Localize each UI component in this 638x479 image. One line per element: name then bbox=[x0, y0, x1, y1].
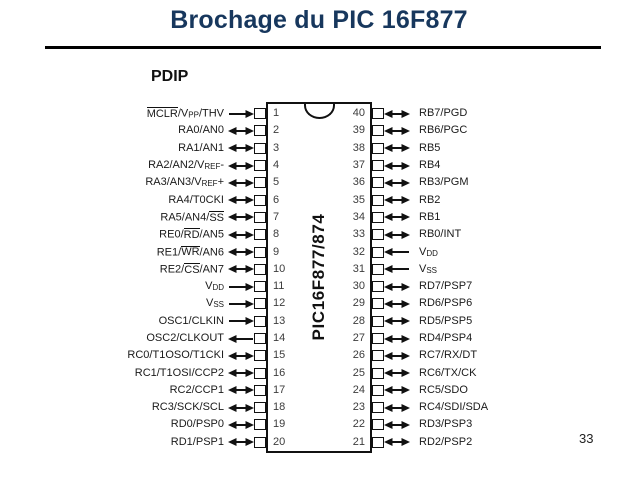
pin-label: RB2 bbox=[410, 195, 638, 206]
pin-label-text: RD2/PSP2 bbox=[419, 436, 472, 448]
pin-label: RD1/PSP1 bbox=[0, 437, 228, 448]
pin-label: RE1/WR/AN6 bbox=[0, 246, 228, 259]
direction-arrow-icon bbox=[228, 316, 254, 326]
pin-label: OSC1/CLKIN bbox=[0, 316, 228, 327]
pin-label: RD2/PSP2 bbox=[410, 437, 638, 448]
bidirectional-arrow-icon bbox=[228, 420, 254, 430]
pin-number: 3 bbox=[266, 143, 294, 154]
bidirectional-arrow-icon bbox=[228, 351, 254, 361]
pin-number: 4 bbox=[266, 160, 294, 171]
pin-label-text: RB5 bbox=[419, 142, 440, 154]
slide: Brochage du PIC 16F877 PDIP PIC16F877/87… bbox=[0, 0, 638, 479]
pin-number: 26 bbox=[344, 350, 372, 361]
pin-label: MCLR/VPP/THV bbox=[0, 107, 228, 120]
pin-number: 10 bbox=[266, 264, 294, 275]
pin-label-text: RD6/PSP6 bbox=[419, 297, 472, 309]
pin-number: 11 bbox=[266, 281, 294, 292]
pin-label-text: /AN6 bbox=[200, 246, 224, 258]
pin-row: RD0/PSP01922RD3/PSP3 bbox=[0, 416, 638, 433]
pin-label-text: OSC1/CLKIN bbox=[159, 315, 224, 327]
pin-label: RB3/PGM bbox=[410, 177, 638, 188]
pin-rows: MCLR/VPP/THV140RB7/PGDRA0/AN0239RB6/PGCR… bbox=[0, 105, 638, 451]
pin-label-overline: MCLR bbox=[147, 107, 178, 120]
pin-label-subscript: REF bbox=[204, 162, 220, 171]
pin-row: VDD1130RD7/PSP7 bbox=[0, 278, 638, 295]
pin-square bbox=[254, 368, 266, 379]
pin-number: 6 bbox=[266, 195, 294, 206]
pin-square bbox=[372, 247, 384, 258]
pin-square bbox=[372, 419, 384, 430]
pin-square bbox=[254, 316, 266, 327]
bidirectional-arrow-icon bbox=[384, 403, 410, 413]
pin-number: 14 bbox=[266, 333, 294, 344]
pin-label: RC1/T1OSI/CCP2 bbox=[0, 368, 228, 379]
pin-square bbox=[372, 437, 384, 448]
pin-square bbox=[254, 229, 266, 240]
pin-number: 21 bbox=[344, 437, 372, 448]
pin-label-subscript: DD bbox=[426, 249, 438, 258]
page-number: 33 bbox=[579, 431, 593, 446]
bidirectional-arrow-icon bbox=[228, 403, 254, 413]
pin-label-overline: SS bbox=[209, 211, 224, 224]
pin-number: 23 bbox=[344, 402, 372, 413]
pin-label: RA5/AN4/SS bbox=[0, 211, 228, 224]
bidirectional-arrow-icon bbox=[384, 420, 410, 430]
pin-label: RD7/PSP7 bbox=[410, 281, 638, 292]
pin-square bbox=[372, 316, 384, 327]
pin-row: RA4/T0CKI635RB2 bbox=[0, 191, 638, 208]
pin-number: 35 bbox=[344, 195, 372, 206]
pin-label-text: RA3/AN3/V bbox=[145, 176, 201, 188]
pin-number: 1 bbox=[266, 108, 294, 119]
package-label: PDIP bbox=[151, 68, 188, 86]
pin-number: 31 bbox=[344, 264, 372, 275]
pin-label-text: RD4/PSP4 bbox=[419, 332, 472, 344]
pin-label-text: RA5/AN4/ bbox=[160, 212, 209, 224]
pin-number: 8 bbox=[266, 229, 294, 240]
pin-row: MCLR/VPP/THV140RB7/PGD bbox=[0, 105, 638, 122]
pin-label-text: RD3/PSP3 bbox=[419, 418, 472, 430]
bidirectional-arrow-icon bbox=[384, 109, 410, 119]
pin-label-text: RB4 bbox=[419, 159, 440, 171]
pin-label: RC6/TX/CK bbox=[410, 368, 638, 379]
pin-label-text: RC1/T1OSI/CCP2 bbox=[135, 367, 224, 379]
pin-label: RA4/T0CKI bbox=[0, 195, 228, 206]
pin-number: 28 bbox=[344, 316, 372, 327]
pin-label: RA2/AN2/VREF- bbox=[0, 160, 228, 171]
pin-label-subscript: SS bbox=[213, 300, 224, 309]
bidirectional-arrow-icon bbox=[228, 437, 254, 447]
pin-label-text: RA4/T0CKI bbox=[168, 194, 224, 206]
pin-number: 7 bbox=[266, 212, 294, 223]
pin-square bbox=[372, 264, 384, 275]
bidirectional-arrow-icon bbox=[384, 178, 410, 188]
bidirectional-arrow-icon bbox=[228, 230, 254, 240]
direction-arrow-icon bbox=[228, 282, 254, 292]
pin-square bbox=[372, 368, 384, 379]
pin-number: 29 bbox=[344, 298, 372, 309]
pin-number: 19 bbox=[266, 419, 294, 430]
bidirectional-arrow-icon bbox=[228, 264, 254, 274]
pin-square bbox=[254, 281, 266, 292]
bidirectional-arrow-icon bbox=[228, 178, 254, 188]
pin-label: RB5 bbox=[410, 143, 638, 154]
pin-label: RA0/AN0 bbox=[0, 125, 228, 136]
pin-square bbox=[254, 333, 266, 344]
pin-square bbox=[372, 125, 384, 136]
pin-square bbox=[254, 402, 266, 413]
pin-number: 15 bbox=[266, 350, 294, 361]
pin-square bbox=[254, 143, 266, 154]
bidirectional-arrow-icon bbox=[228, 385, 254, 395]
bidirectional-arrow-icon bbox=[384, 299, 410, 309]
bidirectional-arrow-icon bbox=[228, 368, 254, 378]
pin-label-text: RB3/PGM bbox=[419, 176, 469, 188]
pin-square bbox=[372, 350, 384, 361]
pin-label: RA1/AN1 bbox=[0, 143, 228, 154]
pin-square bbox=[254, 419, 266, 430]
bidirectional-arrow-icon bbox=[384, 195, 410, 205]
pin-label: RC5/SDO bbox=[410, 385, 638, 396]
pin-label-text: RB6/PGC bbox=[419, 124, 467, 136]
bidirectional-arrow-icon bbox=[384, 126, 410, 136]
pin-square bbox=[372, 298, 384, 309]
pin-label-overline: RD bbox=[184, 228, 200, 241]
pin-square bbox=[372, 229, 384, 240]
pin-number: 17 bbox=[266, 385, 294, 396]
pin-row: RA2/AN2/VREF-437RB4 bbox=[0, 157, 638, 174]
pin-row: RE1/WR/AN6932VDD bbox=[0, 243, 638, 260]
pin-label-text: RD5/PSP5 bbox=[419, 315, 472, 327]
pin-square bbox=[372, 143, 384, 154]
bidirectional-arrow-icon bbox=[228, 143, 254, 153]
pin-row: RD1/PSP12021RD2/PSP2 bbox=[0, 434, 638, 451]
bidirectional-arrow-icon bbox=[228, 126, 254, 136]
pin-label-overline: CS bbox=[184, 263, 199, 276]
pin-row: RC3/SCK/SCL1823RC4/SDI/SDA bbox=[0, 399, 638, 416]
pin-label: RD3/PSP3 bbox=[410, 419, 638, 430]
pin-label-subscript: REF bbox=[202, 179, 218, 188]
pin-label-text: /V bbox=[178, 108, 188, 120]
pin-number: 24 bbox=[344, 385, 372, 396]
pin-label-text: RE2/ bbox=[160, 264, 184, 276]
pin-row: RC0/T1OSO/T1CKI1526RC7/RX/DT bbox=[0, 347, 638, 364]
pin-label: RB1 bbox=[410, 212, 638, 223]
pin-label-text: /AN7 bbox=[200, 264, 224, 276]
pin-number: 39 bbox=[344, 125, 372, 136]
pin-number: 12 bbox=[266, 298, 294, 309]
pin-label: RD5/PSP5 bbox=[410, 316, 638, 327]
pin-row: VSS1229RD6/PSP6 bbox=[0, 295, 638, 312]
pin-label-text: RC2/CCP1 bbox=[170, 384, 224, 396]
pin-number: 40 bbox=[344, 108, 372, 119]
pin-label-text: RC3/SCK/SCL bbox=[152, 401, 224, 413]
pin-label-text: RC0/T1OSO/T1CKI bbox=[127, 349, 224, 361]
pin-square bbox=[254, 108, 266, 119]
pin-number: 9 bbox=[266, 247, 294, 258]
direction-arrow-icon bbox=[228, 299, 254, 309]
pin-label-text: RC5/SDO bbox=[419, 384, 468, 396]
title-underline bbox=[45, 46, 601, 49]
pin-number: 36 bbox=[344, 177, 372, 188]
pin-square bbox=[372, 177, 384, 188]
pin-label: RC4/SDI/SDA bbox=[410, 402, 638, 413]
pin-label: RE0/RD/AN5 bbox=[0, 228, 228, 241]
pin-label-text: RD7/PSP7 bbox=[419, 280, 472, 292]
pin-label-text: RD0/PSP0 bbox=[171, 418, 224, 430]
pin-square bbox=[372, 108, 384, 119]
pin-label-text: RB7/PGD bbox=[419, 107, 467, 119]
pin-label: VSS bbox=[0, 298, 228, 309]
pin-label: RA3/AN3/VREF+ bbox=[0, 177, 228, 188]
pin-square bbox=[372, 333, 384, 344]
pin-label-text: RB0/INT bbox=[419, 228, 461, 240]
pin-label: OSC2/CLKOUT bbox=[0, 333, 228, 344]
pin-number: 27 bbox=[344, 333, 372, 344]
pin-label: RC3/SCK/SCL bbox=[0, 402, 228, 413]
pin-row: RA1/AN1338RB5 bbox=[0, 140, 638, 157]
pin-square bbox=[254, 247, 266, 258]
bidirectional-arrow-icon bbox=[384, 143, 410, 153]
pin-label-text: RB1 bbox=[419, 211, 440, 223]
bidirectional-arrow-icon bbox=[228, 212, 254, 222]
pin-number: 34 bbox=[344, 212, 372, 223]
bidirectional-arrow-icon bbox=[384, 230, 410, 240]
pin-square bbox=[254, 264, 266, 275]
bidirectional-arrow-icon bbox=[228, 195, 254, 205]
pin-label-text: RA2/AN2/V bbox=[148, 159, 204, 171]
bidirectional-arrow-icon bbox=[384, 161, 410, 171]
pin-row: RC1/T1OSI/CCP21625RC6/TX/CK bbox=[0, 364, 638, 381]
bidirectional-arrow-icon bbox=[384, 282, 410, 292]
pin-square bbox=[372, 212, 384, 223]
bidirectional-arrow-icon bbox=[384, 316, 410, 326]
pin-label: RD0/PSP0 bbox=[0, 419, 228, 430]
pin-label-subscript: PP bbox=[188, 111, 199, 120]
pin-square bbox=[372, 402, 384, 413]
pin-square bbox=[254, 437, 266, 448]
direction-arrow-icon bbox=[384, 264, 410, 274]
pin-square bbox=[254, 177, 266, 188]
bidirectional-arrow-icon bbox=[384, 437, 410, 447]
pin-label-subscript: DD bbox=[212, 283, 224, 292]
pin-row: RE2/CS/AN71031VSS bbox=[0, 261, 638, 278]
pin-number: 32 bbox=[344, 247, 372, 258]
pin-label: RB6/PGC bbox=[410, 125, 638, 136]
pin-label: RB0/INT bbox=[410, 229, 638, 240]
pin-label: RC0/T1OSO/T1CKI bbox=[0, 350, 228, 361]
pin-label-text: + bbox=[218, 176, 224, 188]
pin-square bbox=[254, 125, 266, 136]
direction-arrow-icon bbox=[384, 247, 410, 257]
pin-label-text: RA1/AN1 bbox=[178, 142, 224, 154]
pin-label: RD6/PSP6 bbox=[410, 298, 638, 309]
pin-label-subscript: SS bbox=[426, 266, 437, 275]
pin-label: RC7/RX/DT bbox=[410, 350, 638, 361]
pin-label-text: RE0/ bbox=[159, 229, 183, 241]
bidirectional-arrow-icon bbox=[384, 334, 410, 344]
pin-square bbox=[372, 281, 384, 292]
pin-square bbox=[254, 350, 266, 361]
pin-label-text: RC7/RX/DT bbox=[419, 349, 477, 361]
pin-number: 13 bbox=[266, 316, 294, 327]
pin-number: 16 bbox=[266, 368, 294, 379]
pin-number: 38 bbox=[344, 143, 372, 154]
pin-label-text: RC4/SDI/SDA bbox=[419, 401, 488, 413]
pin-row: RA5/AN4/SS734RB1 bbox=[0, 209, 638, 226]
pin-square bbox=[254, 160, 266, 171]
pin-number: 2 bbox=[266, 125, 294, 136]
pin-number: 37 bbox=[344, 160, 372, 171]
pin-number: 5 bbox=[266, 177, 294, 188]
pin-square bbox=[254, 385, 266, 396]
pin-number: 22 bbox=[344, 419, 372, 430]
pin-label-text: RB2 bbox=[419, 194, 440, 206]
page-title: Brochage du PIC 16F877 bbox=[0, 6, 638, 35]
pin-label: RC2/CCP1 bbox=[0, 385, 228, 396]
pin-number: 30 bbox=[344, 281, 372, 292]
pin-row: RA0/AN0239RB6/PGC bbox=[0, 122, 638, 139]
pin-label-text: RD1/PSP1 bbox=[171, 436, 224, 448]
pin-label: RD4/PSP4 bbox=[410, 333, 638, 344]
pin-square bbox=[254, 298, 266, 309]
pin-label-text: OSC2/CLKOUT bbox=[146, 332, 224, 344]
pin-row: OSC2/CLKOUT1427RD4/PSP4 bbox=[0, 330, 638, 347]
bidirectional-arrow-icon bbox=[384, 351, 410, 361]
pin-square bbox=[254, 212, 266, 223]
bidirectional-arrow-icon bbox=[228, 247, 254, 257]
pin-label: RE2/CS/AN7 bbox=[0, 263, 228, 276]
pin-square bbox=[254, 195, 266, 206]
direction-arrow-icon bbox=[228, 109, 254, 119]
pin-row: OSC1/CLKIN1328RD5/PSP5 bbox=[0, 313, 638, 330]
pin-label-text: /AN5 bbox=[200, 229, 224, 241]
pin-row: RE0/RD/AN5833RB0/INT bbox=[0, 226, 638, 243]
pin-number: 20 bbox=[266, 437, 294, 448]
pin-square bbox=[372, 160, 384, 171]
bidirectional-arrow-icon bbox=[384, 368, 410, 378]
pin-label: RB7/PGD bbox=[410, 108, 638, 119]
pin-label-text: RC6/TX/CK bbox=[419, 367, 476, 379]
pin-label-text: /THV bbox=[199, 108, 224, 120]
pin-number: 18 bbox=[266, 402, 294, 413]
pin-label: VSS bbox=[410, 264, 638, 275]
pin-label: VDD bbox=[0, 281, 228, 292]
bidirectional-arrow-icon bbox=[384, 385, 410, 395]
pin-label: VDD bbox=[410, 247, 638, 258]
pin-label-text: - bbox=[220, 159, 224, 171]
bidirectional-arrow-icon bbox=[228, 161, 254, 171]
pin-row: RA3/AN3/VREF+536RB3/PGM bbox=[0, 174, 638, 191]
pin-label: RB4 bbox=[410, 160, 638, 171]
pin-number: 25 bbox=[344, 368, 372, 379]
pin-row: RC2/CCP11724RC5/SDO bbox=[0, 382, 638, 399]
pin-square bbox=[372, 195, 384, 206]
bidirectional-arrow-icon bbox=[384, 212, 410, 222]
pin-label-overline: WR bbox=[181, 246, 199, 259]
pin-number: 33 bbox=[344, 229, 372, 240]
pin-label-text: RE1/ bbox=[157, 246, 181, 258]
pin-square bbox=[372, 385, 384, 396]
pin-label-text: RA0/AN0 bbox=[178, 124, 224, 136]
direction-arrow-icon bbox=[228, 334, 254, 344]
